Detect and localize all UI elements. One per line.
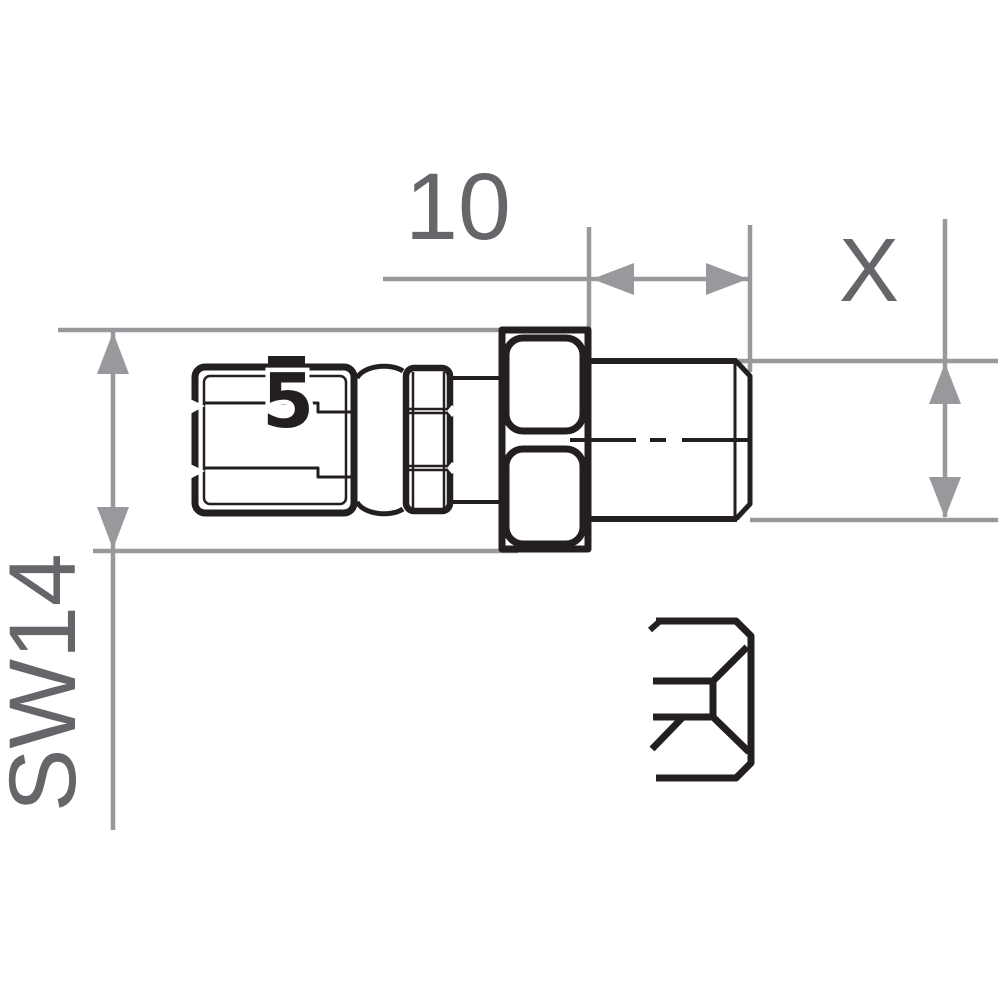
thread-dimension-label: X xyxy=(839,221,899,321)
bulge-section xyxy=(357,366,403,513)
hex-flat-bottom xyxy=(506,449,583,544)
sw14-arrow-up xyxy=(97,332,129,374)
hex-flat-top xyxy=(506,338,583,431)
cone-symbol-lower-taper xyxy=(714,718,749,752)
length-arrow-right xyxy=(706,263,748,295)
female-cone-symbol xyxy=(650,621,751,778)
bulge-bottom-curve xyxy=(357,502,403,514)
sw14-arrow-down xyxy=(97,507,129,549)
fitting-drawing: 10 X SW14 5 xyxy=(0,0,1000,1000)
length-dimension-label: 10 xyxy=(405,154,511,260)
cone-symbol-throat xyxy=(653,681,713,717)
length-arrow-left xyxy=(592,263,634,295)
cone-symbol-body xyxy=(656,621,751,778)
socket-marking-label: 5 xyxy=(262,357,314,445)
socket-step-line-bottom xyxy=(204,468,352,477)
thread-arrow-up xyxy=(929,363,961,404)
wrench-size-label: SW14 xyxy=(0,553,96,812)
ferrule-collar xyxy=(406,368,457,511)
cone-symbol-seat-line xyxy=(652,716,684,749)
thread-arrow-down xyxy=(929,477,961,518)
neck-section xyxy=(450,378,506,502)
cone-symbol-upper-taper xyxy=(713,647,747,681)
technical-drawing-canvas: 10 X SW14 5 xyxy=(0,0,1000,1000)
bulge-top-curve xyxy=(357,366,403,378)
